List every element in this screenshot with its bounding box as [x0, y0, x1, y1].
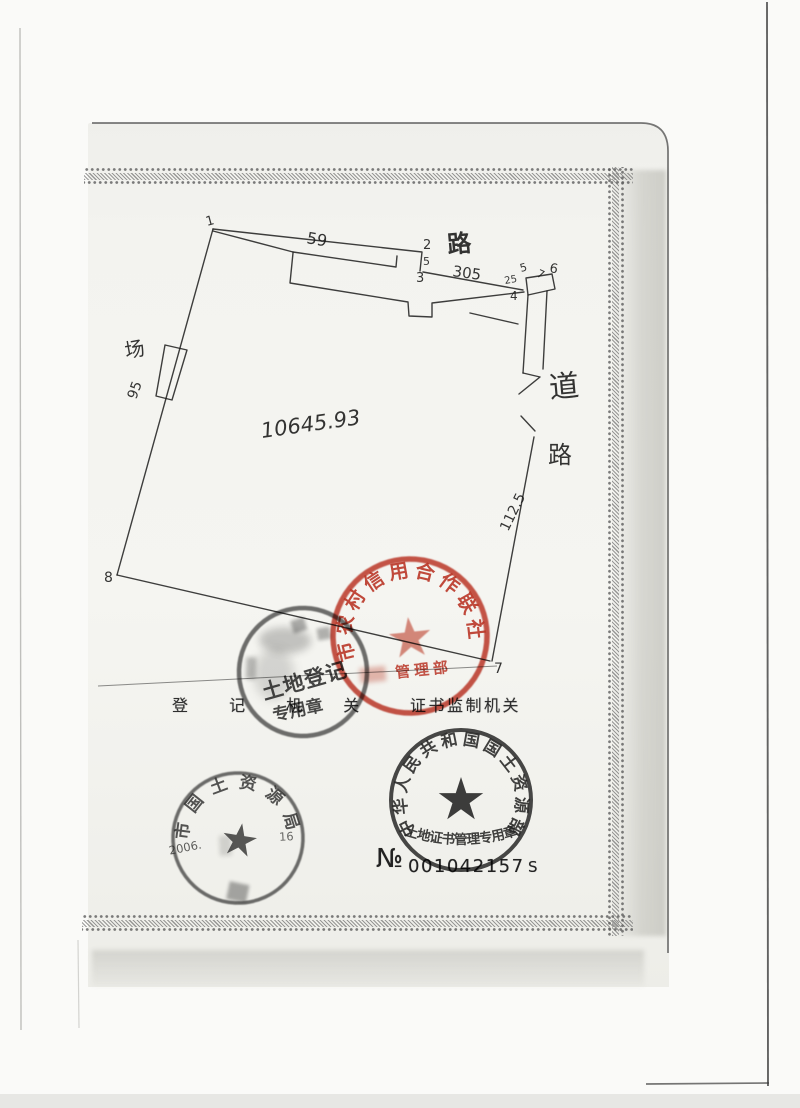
stamp-rim-mark [226, 881, 249, 903]
measurement-95: 95 [125, 379, 146, 401]
building-lower-stroke [470, 313, 518, 324]
building-bottom-outline [290, 253, 524, 317]
vertex-8-label: 8 [104, 570, 113, 586]
parcel-edge-1-8 [117, 229, 213, 575]
bureau-stamp-graphic: 市国土资源局 ★ 2006. 16 [163, 763, 312, 912]
road-label-top: 路 [446, 229, 473, 259]
vertex-6-label: 6 [548, 261, 559, 277]
parcel-right-edge [492, 437, 534, 661]
scanned-land-certificate-page: 1 59 路 2 5 3 305 25 5 7 6 4 道 路 112.5 10… [0, 0, 800, 1108]
building-top-line [293, 252, 397, 267]
stamp-smudge [359, 666, 386, 684]
boundary-break-mark [521, 416, 535, 431]
vertex-1-label: 1 [204, 213, 216, 230]
measurement-7: 7 [535, 267, 547, 282]
ministry-stamp: 中华人民共和国国土资源部 ★ 土地证书管理专用章 [385, 724, 537, 876]
stamp-date-right: 16 [279, 829, 294, 844]
building-top-left-line [213, 231, 293, 252]
star-icon: ★ [435, 765, 487, 833]
vertex-5-label: 5 [518, 261, 528, 275]
vertex-4-label: 4 [510, 289, 518, 303]
land-resources-bureau-stamp: 市国土资源局 ★ 2006. 16 [163, 763, 312, 912]
road-corridor-end [519, 373, 540, 394]
road-label-right-upper: 道 [548, 368, 581, 405]
credit-union-stamp-graphic: 市农村信用合作联社 ★ 管理部 [315, 541, 504, 730]
measurement-59: 59 [305, 228, 328, 250]
measurement-112-5: 112.5 [497, 491, 529, 534]
left-annex-rect [156, 345, 187, 400]
road-corridor-lines [523, 291, 547, 373]
stamp-smudge [219, 835, 232, 856]
measurement-305: 305 [451, 262, 482, 284]
ministry-stamp-graphic: 中华人民共和国国土资源部 ★ 土地证书管理专用章 [385, 724, 537, 876]
measurement-5: 5 [423, 255, 430, 268]
left-annex-label: 场 [123, 336, 147, 363]
measurement-25: 25 [504, 274, 518, 287]
parcel-area-value: 10645.93 [259, 405, 362, 443]
vertex-2-label: 2 [423, 238, 431, 253]
vertex-3-label: 3 [416, 271, 424, 286]
stamp-rim-mark [246, 657, 257, 679]
road-label-right-lower: 路 [548, 441, 572, 469]
credit-union-red-stamp: 市农村信用合作联社 ★ 管理部 [315, 541, 504, 730]
